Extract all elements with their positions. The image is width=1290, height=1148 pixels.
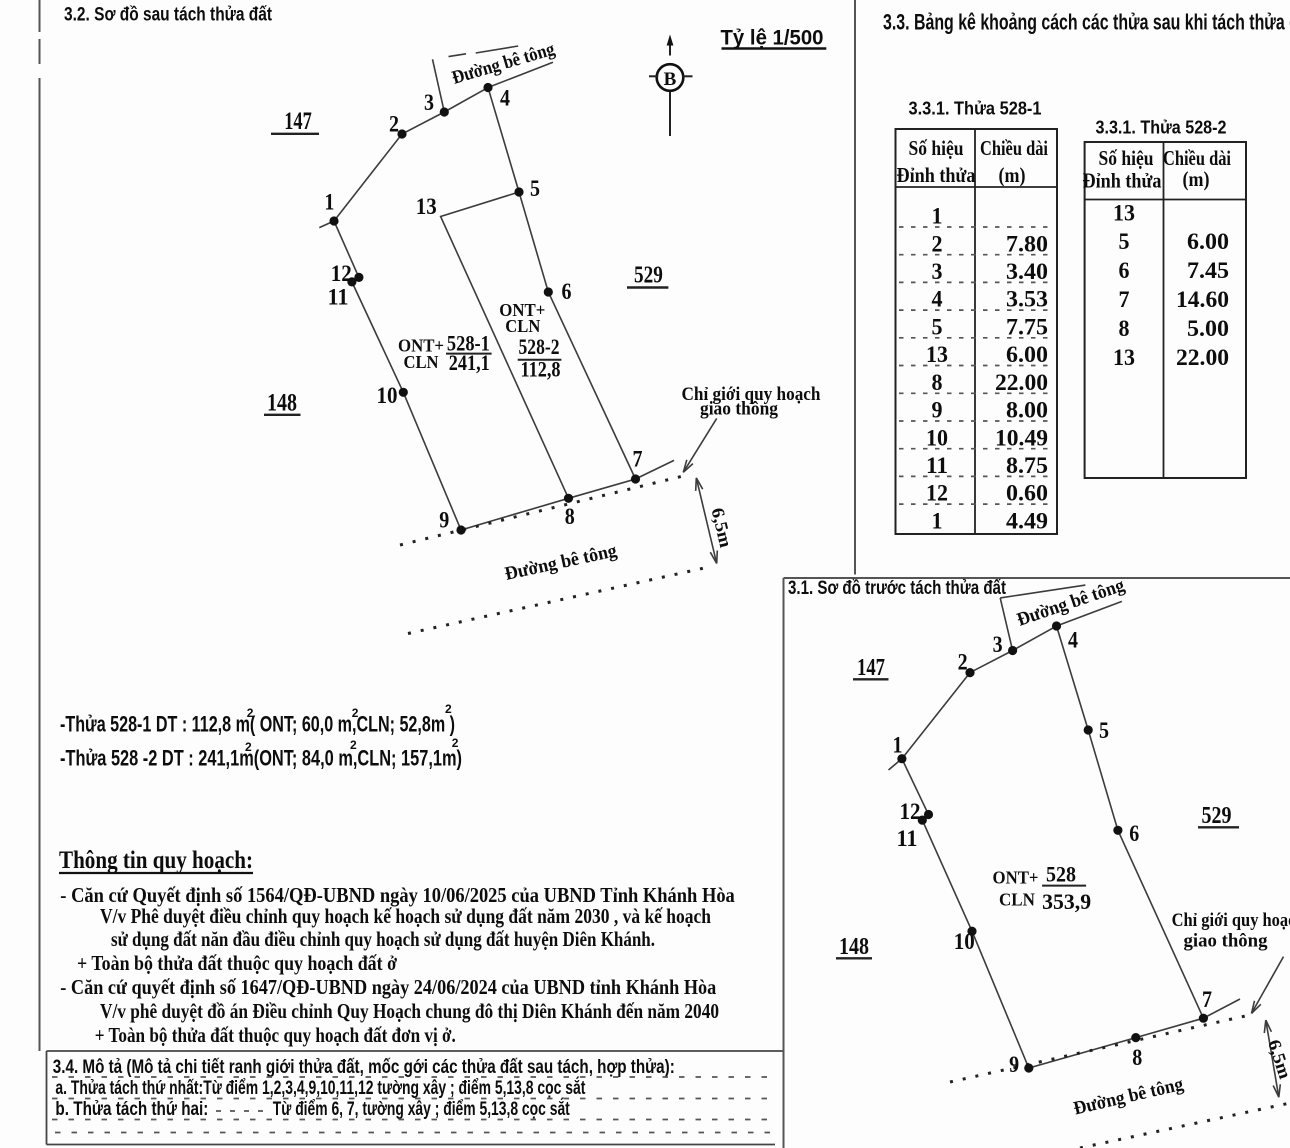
svg-text:4: 4 xyxy=(1068,627,1078,652)
svg-text:12: 12 xyxy=(331,261,352,286)
svg-text:+ Toàn bộ thửa đất thuộc quy h: + Toàn bộ thửa đất thuộc quy hoạch đất ở xyxy=(77,951,397,975)
svg-text:11: 11 xyxy=(328,285,349,310)
svg-text:3.4. Mô tả (Mô tả chi tiết ran: 3.4. Mô tả (Mô tả chi tiết ranh giới thử… xyxy=(53,1057,675,1078)
svg-text:4.49: 4.49 xyxy=(1006,508,1048,533)
svg-text:3.40: 3.40 xyxy=(1006,259,1048,284)
svg-text:- Căn cứ quyết định số 1647/QĐ: - Căn cứ quyết định số 1647/QĐ-UBND ngày… xyxy=(60,975,716,999)
svg-text:CLN: CLN xyxy=(999,890,1035,910)
svg-text:3.3. Bảng kê khoảng cách các t: 3.3. Bảng kê khoảng cách các thửa sau kh… xyxy=(883,10,1290,35)
svg-text:6: 6 xyxy=(1119,258,1130,283)
svg-text:Đỉnh thửa: Đỉnh thửa xyxy=(897,163,976,187)
svg-text:V/v Phê duyệt điều chỉnh quy h: V/v Phê duyệt điều chỉnh quy hoạch kế ho… xyxy=(100,904,711,928)
svg-text:+ Toàn bộ thửa đất thuộc quy h: + Toàn bộ thửa đất thuộc quy hoạch đất đ… xyxy=(95,1023,456,1047)
svg-text:Đường bê tông: Đường bê tông xyxy=(503,540,619,585)
svg-text:V/v phê duyệt đồ án Điều chỉnh: V/v phê duyệt đồ án Điều chỉnh Quy Hoạch… xyxy=(100,999,719,1023)
svg-text:3.1. Sơ đồ trước tách thửa đất: 3.1. Sơ đồ trước tách thửa đất xyxy=(788,578,1007,599)
svg-text:7.80: 7.80 xyxy=(1006,231,1048,256)
svg-text:B: B xyxy=(664,69,677,90)
svg-text:13: 13 xyxy=(1113,345,1135,370)
svg-text:3: 3 xyxy=(424,90,434,115)
svg-text:3.2. Sơ đồ sau tách thửa đất: 3.2. Sơ đồ sau tách thửa đất xyxy=(64,5,273,26)
svg-text:Chiều dài: Chiều dài xyxy=(980,136,1048,160)
svg-text:7: 7 xyxy=(1119,287,1130,312)
svg-text:241,1: 241,1 xyxy=(449,350,490,375)
svg-text:Thông tin quy hoạch:: Thông tin quy hoạch: xyxy=(59,847,253,874)
svg-text:Đường bê tông: Đường bê tông xyxy=(1072,1074,1186,1120)
svg-text:2: 2 xyxy=(245,740,252,754)
svg-text:CLN: CLN xyxy=(404,352,439,372)
svg-text:147: 147 xyxy=(284,108,312,135)
svg-text:353,9: 353,9 xyxy=(1042,889,1091,914)
svg-text:9: 9 xyxy=(932,398,943,423)
svg-text:8.00: 8.00 xyxy=(1006,398,1048,423)
svg-text:Đỉnh thửa: Đỉnh thửa xyxy=(1083,169,1162,193)
svg-text:148: 148 xyxy=(267,390,297,417)
svg-text:1: 1 xyxy=(893,732,903,757)
svg-text:147: 147 xyxy=(857,655,885,681)
svg-text:2: 2 xyxy=(958,650,968,675)
svg-text:8: 8 xyxy=(1119,316,1130,341)
svg-text:7: 7 xyxy=(633,447,643,472)
svg-text:5: 5 xyxy=(1119,229,1130,254)
svg-text:13: 13 xyxy=(416,194,437,219)
svg-text:529: 529 xyxy=(1202,803,1232,829)
svg-text:528-2: 528-2 xyxy=(519,334,560,359)
svg-text:8.75: 8.75 xyxy=(1006,453,1048,478)
svg-text:3.3.1. Thửa 528-1: 3.3.1. Thửa 528-1 xyxy=(909,99,1042,119)
svg-text:6: 6 xyxy=(1129,821,1139,846)
svg-text:CLN: CLN xyxy=(505,316,540,336)
svg-text:11: 11 xyxy=(926,453,948,478)
svg-text:6,5m: 6,5m xyxy=(1264,1037,1290,1081)
svg-text:5: 5 xyxy=(1099,718,1109,743)
svg-text:529: 529 xyxy=(634,263,663,289)
svg-text:8: 8 xyxy=(1132,1045,1142,1070)
svg-text:Số hiệu: Số hiệu xyxy=(1099,146,1154,170)
svg-text:13: 13 xyxy=(926,342,948,367)
svg-text:(m): (m) xyxy=(1183,167,1210,191)
svg-text:6: 6 xyxy=(562,279,572,304)
svg-text:Đường bê tông: Đường bê tông xyxy=(1014,575,1127,631)
svg-text:7: 7 xyxy=(1202,987,1212,1012)
svg-text:3: 3 xyxy=(993,632,1003,657)
svg-text:10: 10 xyxy=(377,383,398,408)
svg-text:2: 2 xyxy=(445,702,452,716)
svg-text:sử dụng đất năn đầu điều chỉnh: sử dụng đất năn đầu điều chỉnh quy hoạch… xyxy=(111,927,655,951)
svg-text:2: 2 xyxy=(389,111,399,136)
svg-text:-Thửa 528 -2 DT : 241,1m(ONT;: -Thửa 528 -2 DT : 241,1m(ONT; 84,0 m,CLN… xyxy=(60,746,462,771)
svg-text:2: 2 xyxy=(350,738,357,752)
svg-text:ONT+: ONT+ xyxy=(993,868,1039,888)
svg-text:Từ điểm 6, 7, tường xây ; đ: Từ điểm 6, 7, tường xây ; điểm 5,13,8 cọ… xyxy=(273,1098,570,1120)
svg-text:112,8: 112,8 xyxy=(521,357,561,382)
svg-text:3: 3 xyxy=(932,259,943,284)
svg-text:giao thông: giao thông xyxy=(700,399,778,420)
svg-text:6.00: 6.00 xyxy=(1006,342,1048,367)
svg-text:4: 4 xyxy=(500,85,510,110)
svg-text:2: 2 xyxy=(452,736,459,750)
svg-text:-Thửa 528-1 DT : 112,8 m( ONT;: -Thửa 528-1 DT : 112,8 m( ONT; 60,0 m,CL… xyxy=(60,712,455,737)
svg-text:13: 13 xyxy=(1113,200,1135,225)
svg-text:14.60: 14.60 xyxy=(1176,287,1229,312)
svg-text:1: 1 xyxy=(324,190,334,215)
svg-text:11: 11 xyxy=(897,826,918,851)
svg-text:12: 12 xyxy=(926,481,948,506)
svg-text:528: 528 xyxy=(1046,862,1076,887)
svg-text:9: 9 xyxy=(439,508,449,533)
svg-text:10: 10 xyxy=(954,929,975,954)
svg-text:8: 8 xyxy=(565,504,575,529)
svg-text:giao thông: giao thông xyxy=(1184,930,1268,951)
svg-text:b. Thửa tách thứ hai:: b. Thửa tách thứ hai: xyxy=(55,1099,208,1120)
svg-text:2: 2 xyxy=(932,231,943,256)
svg-text:3.53: 3.53 xyxy=(1006,287,1048,312)
svg-text:Tỷ lệ 1/500: Tỷ lệ 1/500 xyxy=(721,27,824,50)
svg-text:1: 1 xyxy=(932,508,943,533)
svg-text:2: 2 xyxy=(247,706,254,720)
svg-text:0.60: 0.60 xyxy=(1006,481,1048,506)
svg-text:7.75: 7.75 xyxy=(1006,314,1048,339)
svg-text:8: 8 xyxy=(932,370,943,395)
svg-text:5.00: 5.00 xyxy=(1187,316,1229,341)
svg-text:(m): (m) xyxy=(999,163,1026,187)
svg-text:2: 2 xyxy=(352,706,359,720)
svg-text:10: 10 xyxy=(926,425,948,450)
svg-text:Số hiệu: Số hiệu xyxy=(909,136,964,160)
svg-text:9: 9 xyxy=(1009,1052,1019,1077)
svg-text:22.00: 22.00 xyxy=(1176,345,1229,370)
svg-text:10.49: 10.49 xyxy=(995,425,1048,450)
svg-text:7.45: 7.45 xyxy=(1187,258,1229,283)
svg-text:6.00: 6.00 xyxy=(1187,229,1229,254)
svg-text:1: 1 xyxy=(932,204,943,229)
svg-text:5: 5 xyxy=(530,176,540,201)
svg-text:Chỉ giới quy hoạch: Chỉ giới quy hoạch xyxy=(1172,910,1290,931)
svg-text:148: 148 xyxy=(839,934,869,960)
svg-text:4: 4 xyxy=(932,287,943,312)
svg-text:a. Thửa tách thứ nhất:Từ điểm: a. Thửa tách thứ nhất:Từ điểm 1,2,3,4,9,… xyxy=(55,1077,585,1099)
svg-text:12: 12 xyxy=(900,799,921,824)
svg-text:5: 5 xyxy=(932,314,943,339)
svg-text:22.00: 22.00 xyxy=(995,370,1048,395)
svg-text:3.3.1. Thửa 528-2: 3.3.1. Thửa 528-2 xyxy=(1096,118,1227,138)
